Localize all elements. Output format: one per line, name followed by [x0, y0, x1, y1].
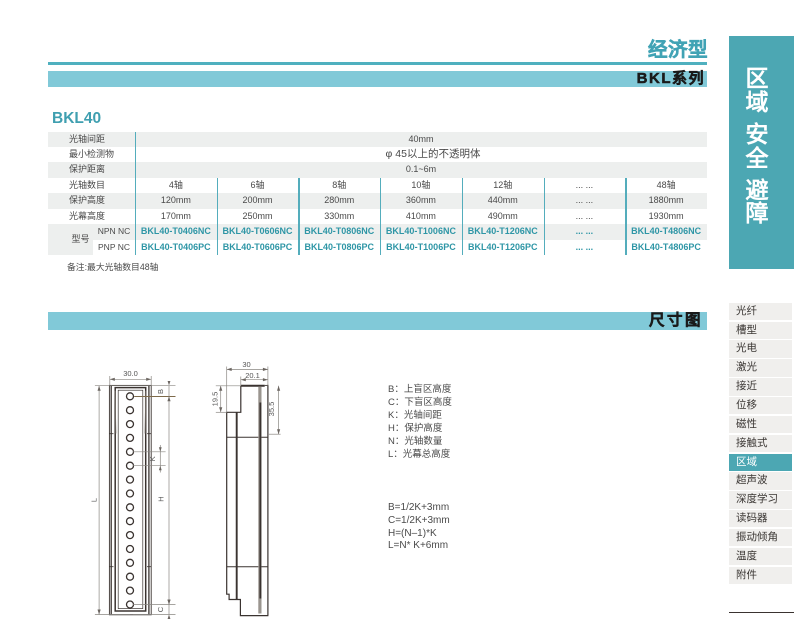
- svg-text:K: K: [148, 456, 157, 461]
- svg-text:35.5: 35.5: [267, 402, 276, 417]
- svg-text:20.1: 20.1: [245, 371, 260, 380]
- svg-text:30.0: 30.0: [123, 369, 138, 378]
- svg-text:H: H: [157, 496, 166, 501]
- svg-text:C: C: [156, 606, 165, 612]
- svg-text:B: B: [156, 389, 165, 394]
- svg-text:30: 30: [242, 360, 250, 369]
- svg-text:L: L: [90, 498, 99, 502]
- svg-text:19.5: 19.5: [210, 392, 219, 407]
